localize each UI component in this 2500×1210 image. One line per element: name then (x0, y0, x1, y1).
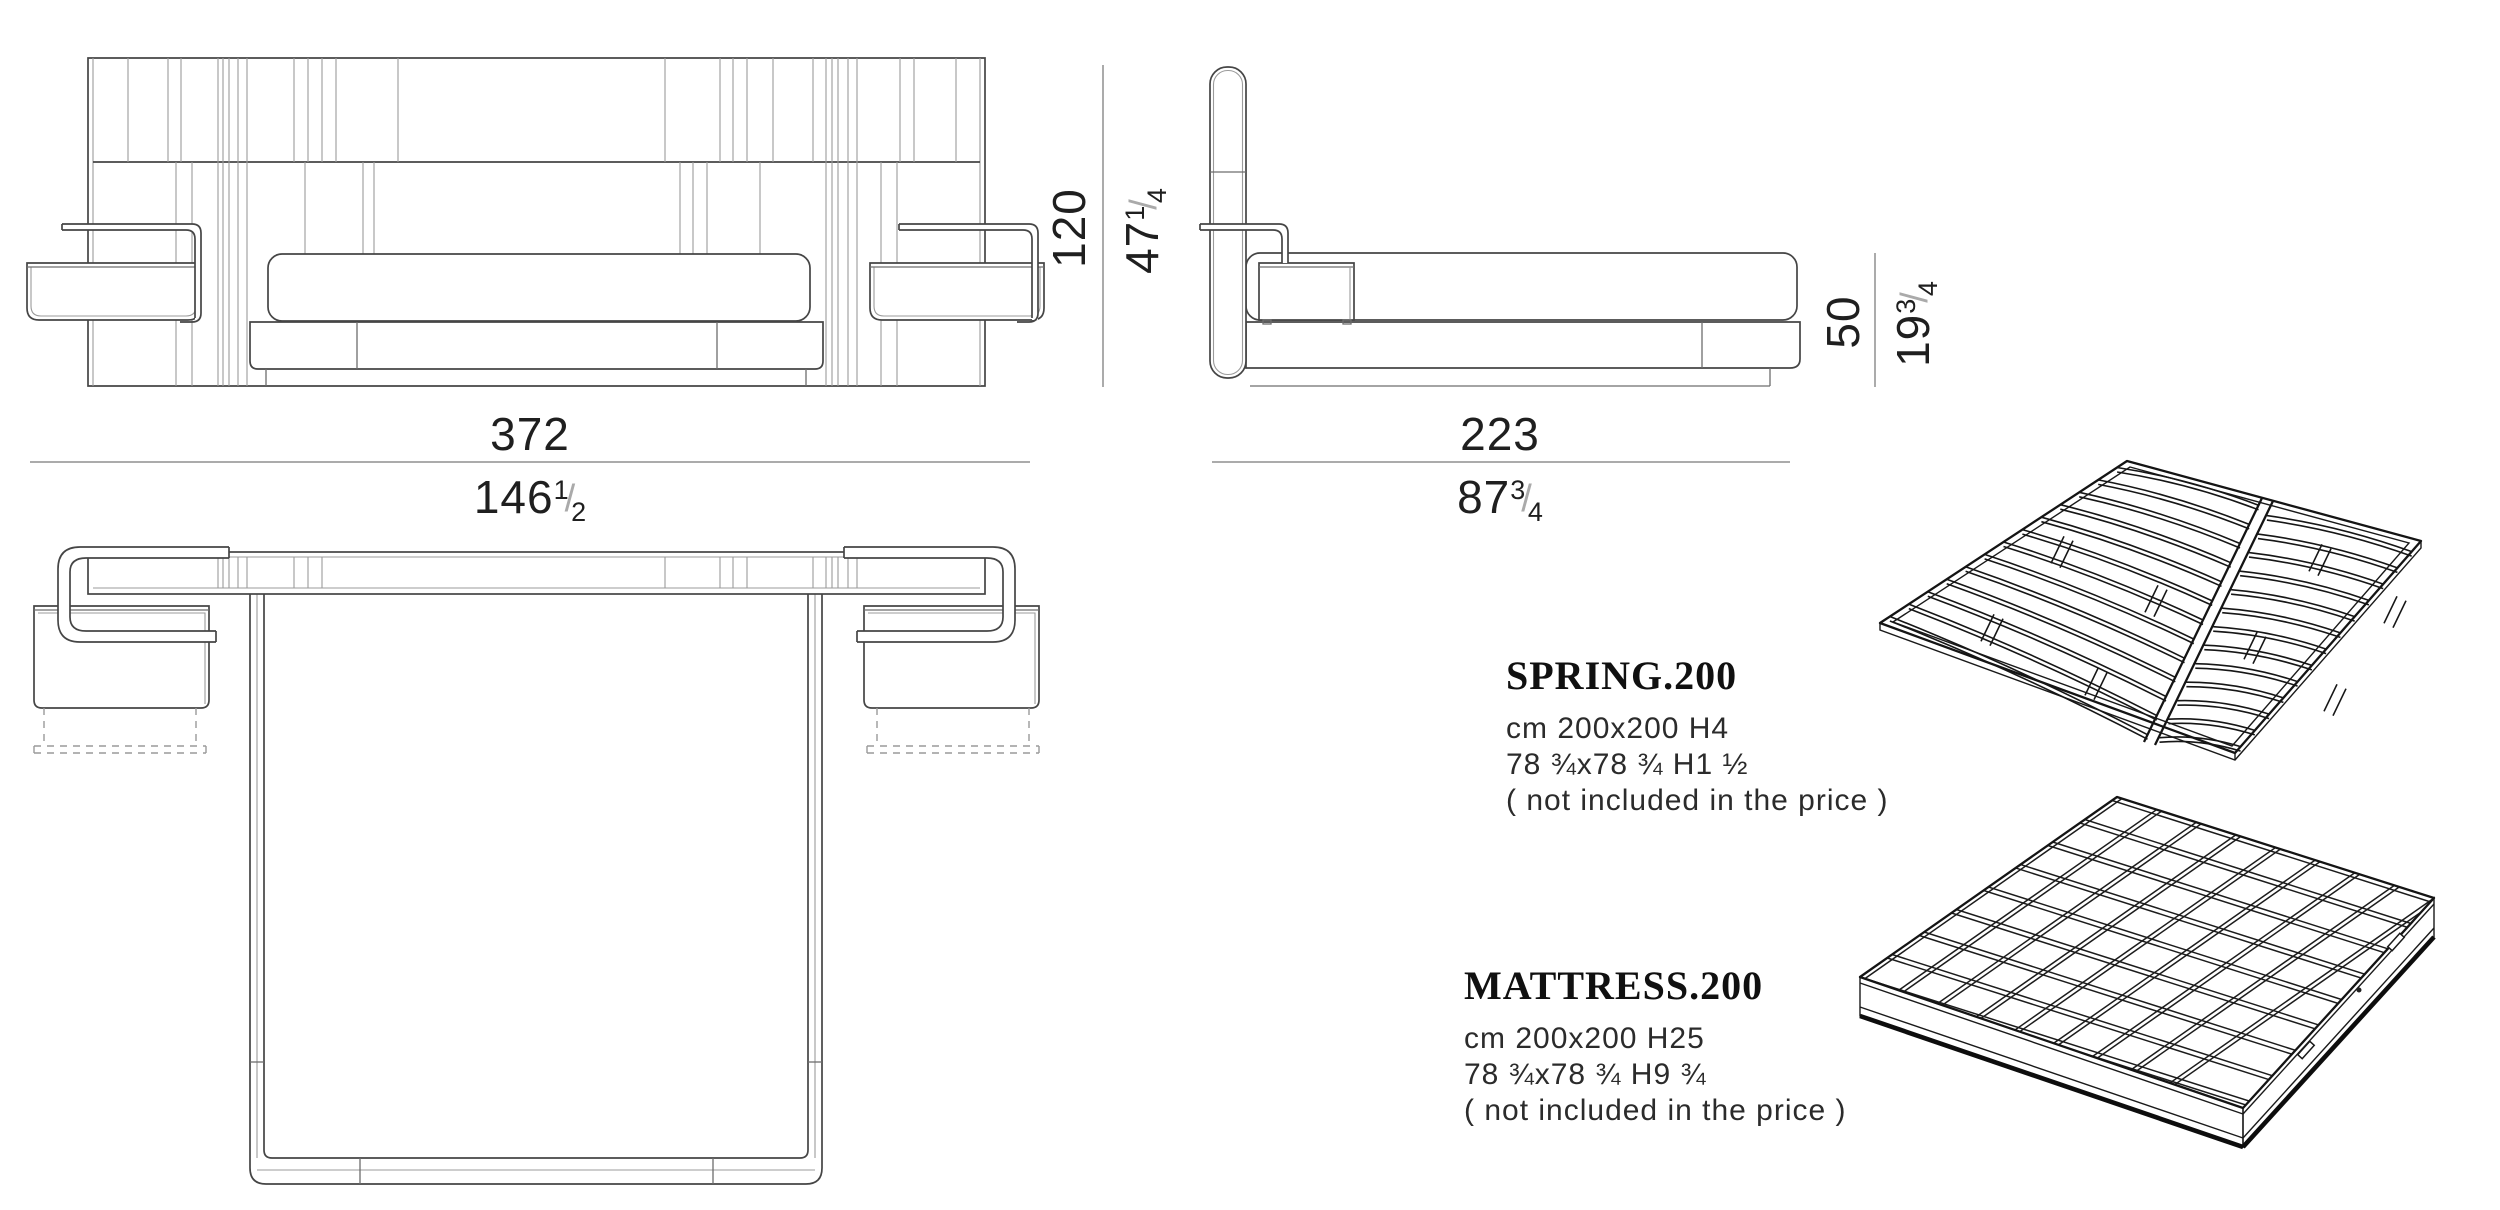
mattress-size-inch: 78 ¾x78 ¾ H9 ¾ (1464, 1057, 1847, 1093)
front-height-inch-den: 4 (1142, 188, 1172, 203)
side-depth-dimension-inch: 873/4 (1457, 470, 1543, 524)
front-width-dimension-inch: 1461/2 (474, 470, 586, 524)
front-height-dimension-inch: 471/4 (1115, 188, 1169, 274)
spring-price-note: ( not included in the price ) (1506, 783, 1889, 819)
side-seat-inch-den: 4 (1913, 281, 1943, 296)
spring-size-cm: cm 200x200 H4 (1506, 711, 1889, 747)
front-width-inch-whole: 146 (474, 471, 554, 523)
spring-product-block: SPRING.200 cm 200x200 H4 78 ¾x78 ¾ H1 ½ … (1506, 652, 1889, 819)
front-height-inch-whole: 47 (1116, 221, 1168, 274)
side-depth-inch-den: 4 (1528, 497, 1543, 527)
front-height-dimension-cm: 120 (1042, 188, 1096, 268)
technical-drawing (0, 0, 2500, 1210)
side-depth-dimension-cm: 223 (1460, 407, 1540, 461)
side-seat-inch-whole: 19 (1887, 314, 1939, 367)
side-depth-inch-whole: 87 (1457, 471, 1510, 523)
front-elevation-drawing (27, 58, 1044, 386)
spec-sheet: 372 1461/2 120 471/4 223 873/4 50 193/4 … (0, 0, 2500, 1210)
side-seat-height-dimension-inch: 193/4 (1886, 281, 1940, 367)
mattress-product-block: MATTRESS.200 cm 200x200 H25 78 ¾x78 ¾ H9… (1464, 962, 1847, 1129)
plan-view-drawing (34, 547, 1039, 1184)
spring-size-inch: 78 ¾x78 ¾ H1 ½ (1506, 747, 1889, 783)
spring-product-name: SPRING.200 (1506, 652, 1889, 699)
mattress-size-cm: cm 200x200 H25 (1464, 1021, 1847, 1057)
front-width-dimension-cm: 372 (490, 407, 570, 461)
side-seat-height-dimension-cm: 50 (1816, 295, 1870, 348)
mattress-price-note: ( not included in the price ) (1464, 1093, 1847, 1129)
front-width-inch-den: 2 (571, 497, 586, 527)
side-elevation-drawing (1200, 67, 1800, 386)
mattress-product-name: MATTRESS.200 (1464, 962, 1847, 1009)
spring-base-illustration (1880, 461, 2421, 760)
